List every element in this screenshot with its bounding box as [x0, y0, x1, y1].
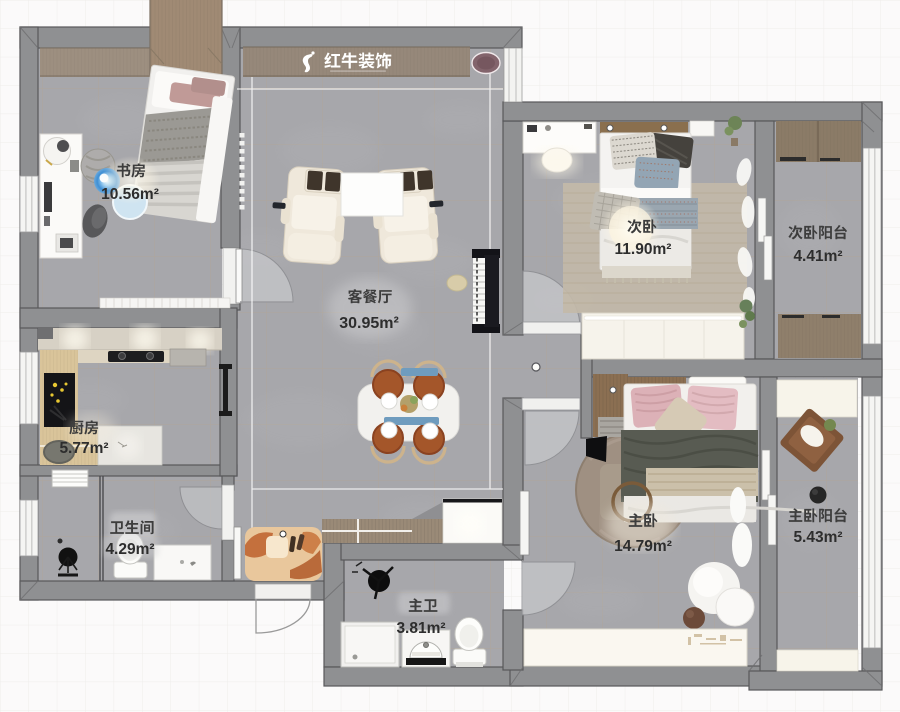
svg-text:5.43m²: 5.43m²	[793, 529, 842, 546]
svg-text:5.77m²: 5.77m²	[59, 440, 108, 457]
svg-text:4.29m²: 4.29m²	[105, 541, 154, 558]
svg-text:30.95m²: 30.95m²	[339, 315, 399, 332]
svg-text:10.56m²: 10.56m²	[101, 186, 159, 203]
svg-text:3.81m²: 3.81m²	[396, 620, 445, 637]
svg-text:4.41m²: 4.41m²	[793, 248, 842, 265]
svg-text:11.90m²: 11.90m²	[615, 241, 672, 258]
svg-text:14.79m²: 14.79m²	[614, 538, 672, 555]
